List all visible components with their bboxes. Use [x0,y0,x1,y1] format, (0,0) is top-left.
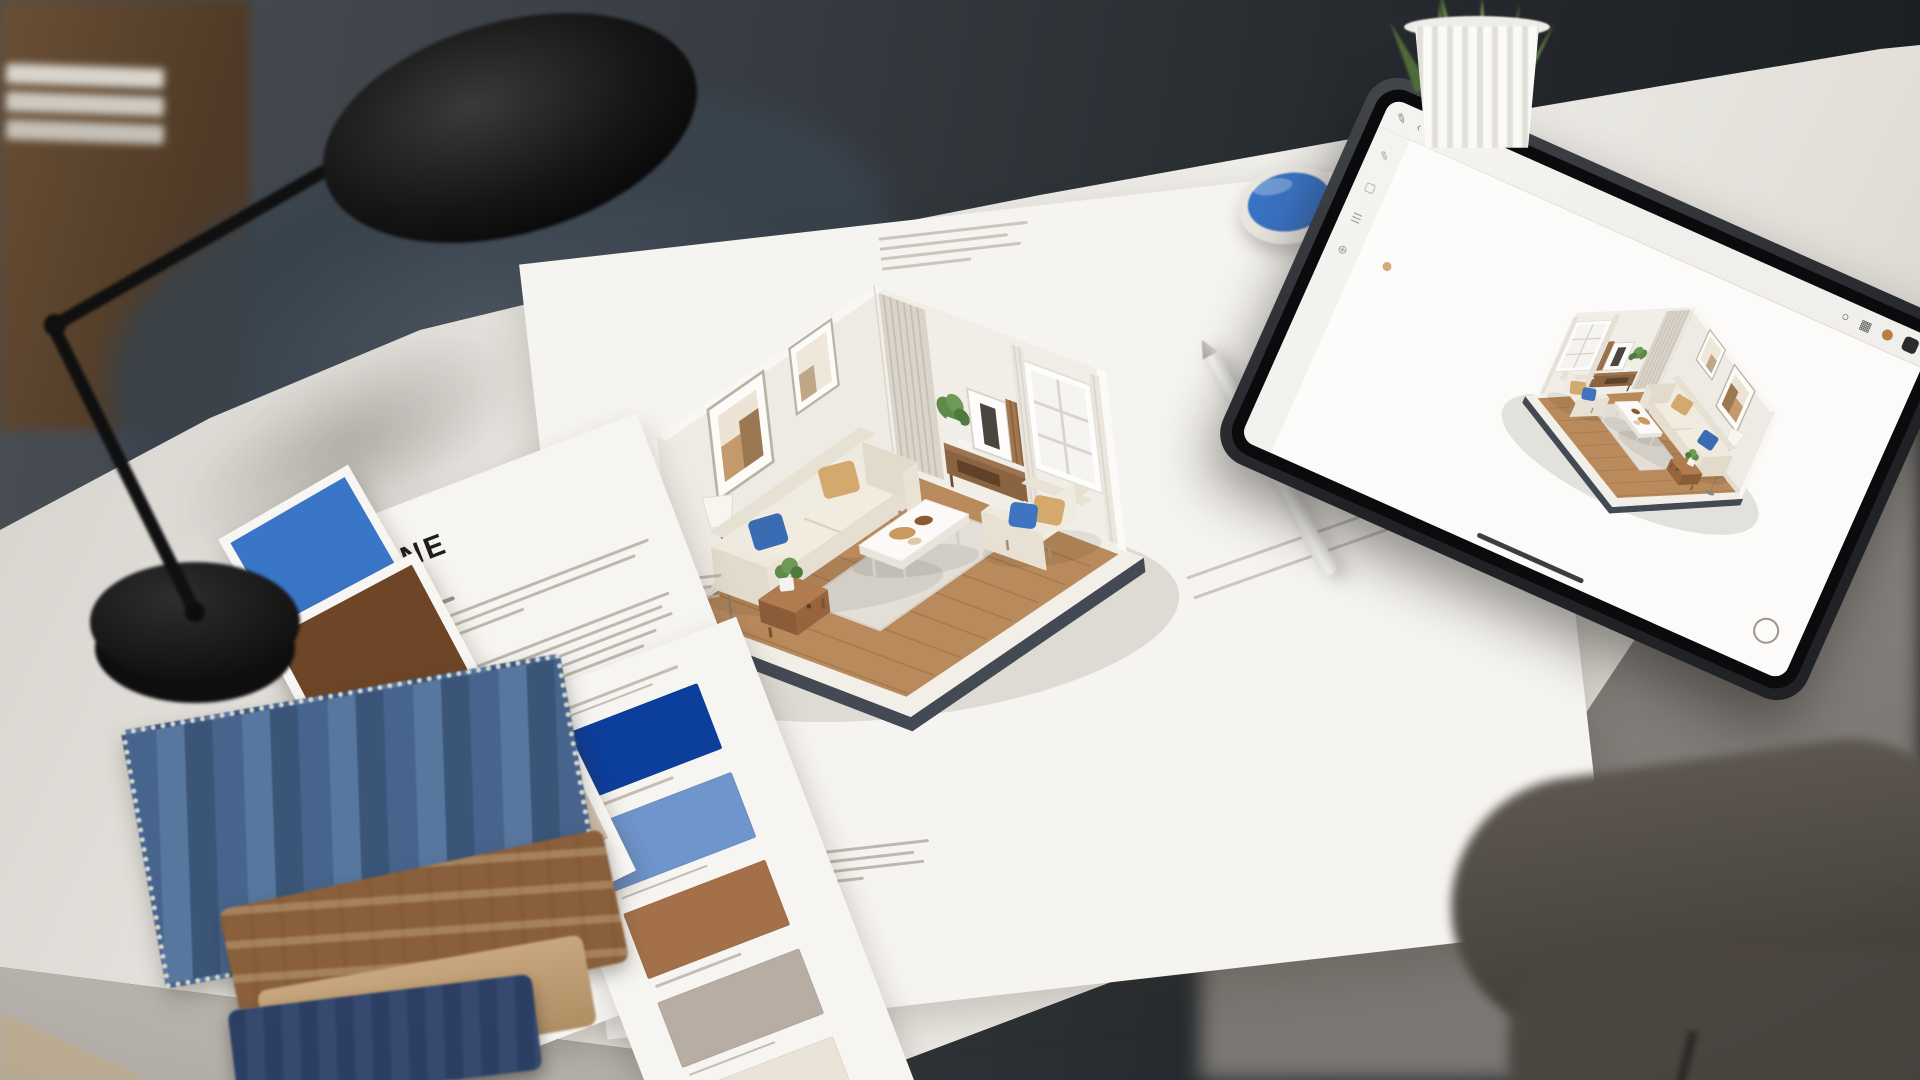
circle-tool-icon [1749,614,1783,648]
add-tool-icon: ⊕ [1335,241,1350,258]
text-line [878,221,1027,241]
layers-icon: ☰ [1349,210,1365,227]
pencil-icon: ✎ [1393,109,1409,128]
planter-pot [1408,26,1546,148]
canvas-color-mark [1381,261,1393,273]
circle-tool-icon: ○ [1839,308,1852,325]
grid-icon: ▦ [1857,316,1875,336]
pencil-icon: ✎ [1377,148,1392,165]
desk-chair-seat [1508,948,1920,1080]
back-icon: ‹ [1414,119,1424,134]
color-dot-icon [1880,328,1895,343]
dark-square-icon [1900,335,1920,355]
text-line [882,257,972,270]
designer-desk-scene: OCTINE [0,0,1920,1080]
shapes-icon: ▢ [1362,179,1378,196]
